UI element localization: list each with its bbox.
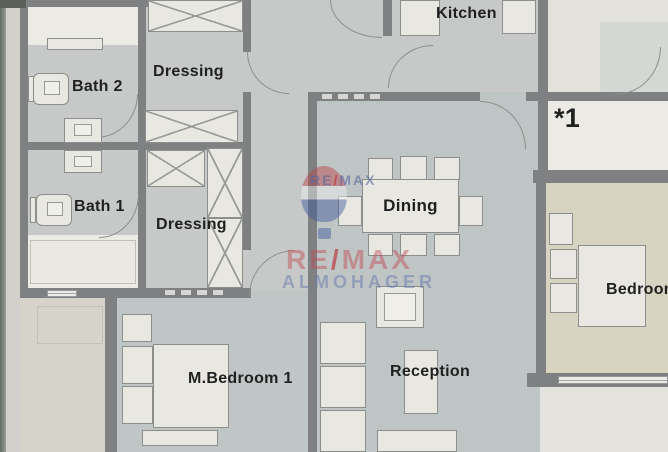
shelf xyxy=(47,38,103,50)
wall xyxy=(243,92,251,250)
toilet-seat xyxy=(47,202,63,216)
wall xyxy=(536,183,546,387)
balcony-element xyxy=(37,306,103,344)
wardrobe-symbol xyxy=(145,110,238,143)
side-table-top xyxy=(384,293,416,321)
toilet-symbol xyxy=(36,194,72,226)
toilet-seat xyxy=(44,81,60,95)
outside-lower-right xyxy=(546,385,668,452)
sink-basin xyxy=(74,156,92,167)
dashed-opening xyxy=(165,290,223,295)
floor-plan-photo: Dining Kitchen Bath 2 Dressing Bath 1 Dr… xyxy=(0,0,668,452)
kitchen-label: Kitchen xyxy=(436,5,497,23)
wardrobe-symbol xyxy=(148,0,243,32)
paper-edge xyxy=(6,0,20,452)
sink-basin xyxy=(74,124,92,136)
wardrobe-symbol xyxy=(207,148,243,218)
bed-bench xyxy=(142,430,218,446)
kitchen-fridge xyxy=(502,0,536,34)
sofa-cushion xyxy=(320,366,366,408)
kitchen-counter xyxy=(400,0,440,36)
sofa-cushion xyxy=(320,322,366,364)
bedroom-window xyxy=(558,376,668,384)
reception-label: Reception xyxy=(390,363,470,381)
bed-pillow xyxy=(122,386,153,424)
wall xyxy=(383,0,392,36)
wall xyxy=(105,288,117,452)
remax-slash: / xyxy=(331,244,342,275)
wall xyxy=(548,92,668,101)
remax-balloon-basket-icon xyxy=(318,228,331,239)
dining-chair xyxy=(400,156,427,180)
nightstand xyxy=(550,283,577,313)
dining-table: Dining xyxy=(362,179,459,233)
photo-corner-shadow xyxy=(0,0,26,8)
remax-re: RE xyxy=(286,244,331,275)
wardrobe-symbol xyxy=(147,150,205,187)
unit-marker-label: *1 xyxy=(554,103,580,134)
toilet-symbol xyxy=(33,73,69,105)
bedroom-label: Bedroom xyxy=(606,281,668,299)
dressing-mid-label: Dressing xyxy=(156,216,227,234)
remax-max: MAX xyxy=(339,172,376,188)
sofa-bottom xyxy=(377,430,457,452)
remax-max: MAX xyxy=(342,244,413,275)
sink-symbol xyxy=(64,150,102,173)
dressing-top-label: Dressing xyxy=(153,63,224,81)
remax-watermark-small: RE/MAX xyxy=(310,172,376,188)
wall xyxy=(243,0,251,52)
agency-watermark: ALMOHAGER xyxy=(282,272,436,293)
dining-chair xyxy=(434,157,460,180)
dining-chair xyxy=(434,234,460,256)
bath-window xyxy=(47,290,77,297)
bath1-label: Bath 1 xyxy=(74,198,125,216)
bed-pillow xyxy=(122,346,153,384)
closet xyxy=(549,213,573,245)
dashed-opening xyxy=(322,94,380,99)
nightstand xyxy=(122,314,152,342)
reception-table xyxy=(404,350,438,414)
wall xyxy=(533,170,668,183)
bathtub-symbol xyxy=(30,240,136,284)
sink-symbol xyxy=(64,118,102,143)
sofa-cushion xyxy=(320,410,366,452)
remax-re: RE xyxy=(310,172,333,188)
wall xyxy=(538,0,548,172)
dining-chair xyxy=(459,196,483,226)
dining-label: Dining xyxy=(383,196,438,216)
bath2-label: Bath 2 xyxy=(72,78,123,96)
master-bedroom-label: M.Bedroom 1 xyxy=(188,370,293,388)
nightstand xyxy=(550,249,577,279)
photo-edge-shadow xyxy=(0,0,6,452)
